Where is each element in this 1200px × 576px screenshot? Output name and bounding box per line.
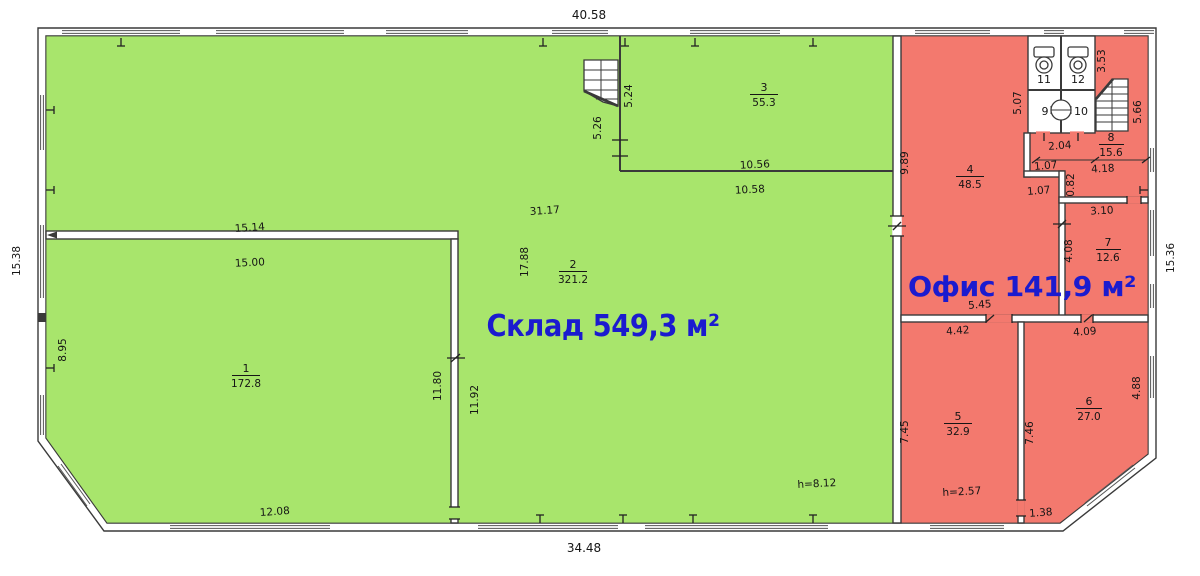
sink-icon [1051, 100, 1071, 120]
room6-number: 6 [1086, 395, 1093, 408]
dim-wall1-top: 15.14 [234, 221, 265, 235]
dim-room2-height: 17.88 [519, 247, 531, 277]
dim-step-b: 1.07 [1027, 184, 1051, 198]
room1-area: 172.8 [231, 378, 261, 390]
dim-wall1-bot: 15.00 [235, 256, 266, 270]
dim-room8-height: 5.66 [1132, 100, 1144, 124]
dim-room8-width: 3.53 [1096, 49, 1108, 72]
room4-area: 48.5 [958, 179, 981, 191]
dim-room5-width: 4.42 [946, 324, 970, 338]
toilet-icon-room12 [1068, 47, 1088, 73]
dim-room7-bottom: 4.09 [1073, 325, 1097, 339]
room5-number: 5 [955, 410, 962, 423]
dim-room4-height: 9.89 [899, 151, 911, 174]
dim-room6-side: 4.88 [1131, 376, 1143, 399]
dim-room3-width-out: 10.58 [735, 183, 766, 197]
room3-number: 3 [761, 81, 768, 94]
room9-number: 9 [1042, 105, 1049, 118]
dim-bottom: 34.48 [567, 541, 601, 555]
room12-number: 12 [1071, 73, 1085, 86]
dim-room3-left-in: 5.24 [623, 84, 635, 108]
dim-room7-height: 4.08 [1063, 239, 1075, 262]
floor-plan: 40.58 34.48 12.08 15.38 8.95 15.36 15.14… [0, 0, 1200, 576]
dim-room2-width: 31.17 [529, 204, 560, 218]
dim-room6-bottom: 1.38 [1029, 506, 1053, 520]
room7-number: 7 [1105, 236, 1112, 249]
dim-wc-width: 2.04 [1048, 139, 1072, 153]
room8-area: 15.6 [1099, 147, 1123, 159]
dim-warehouse-height: h=8.12 [797, 477, 836, 491]
toilet-icon-room11 [1034, 47, 1054, 73]
dim-top: 40.58 [572, 8, 606, 22]
room2-area: 321.2 [558, 274, 588, 286]
room8-number: 8 [1108, 131, 1115, 144]
dim-wallb-right: 11.92 [469, 385, 481, 415]
dim-right: 15.36 [1165, 243, 1177, 273]
warehouse-title: Склад 549,3 м² [487, 309, 720, 344]
dim-wallb-left: 11.80 [432, 371, 444, 401]
room3-area: 55.3 [752, 97, 775, 109]
dim-bottom-left: 12.08 [259, 505, 290, 519]
dim-left: 15.38 [11, 246, 23, 276]
dim-left-inner: 8.95 [57, 338, 69, 361]
room7-area: 12.6 [1096, 252, 1120, 264]
dim-room7-top: 3.10 [1090, 204, 1114, 217]
dim-room6-height: 7.46 [1024, 421, 1036, 445]
dim-room5-height: 7.45 [899, 420, 911, 443]
room10-number: 10 [1074, 105, 1088, 118]
dim-hall-width: 4.18 [1091, 162, 1115, 175]
dim-step-a: 1.07 [1034, 159, 1058, 173]
room1-number: 1 [243, 362, 250, 375]
dim-step-v: 0.82 [1065, 173, 1077, 196]
room4-number: 4 [967, 163, 974, 176]
room5-area: 32.9 [946, 426, 969, 438]
office-title: Офис 141,9 м² [908, 270, 1136, 303]
room11-number: 11 [1037, 73, 1051, 86]
floor-plan-svg: 40.58 34.48 12.08 15.38 8.95 15.36 15.14… [0, 0, 1200, 576]
dim-room5-ceiling: h=2.57 [942, 485, 981, 499]
room2-number: 2 [570, 258, 577, 271]
dim-room3-left-out: 5.26 [592, 116, 604, 140]
warehouse-zone [46, 36, 893, 523]
dim-room3-width-in: 10.56 [740, 158, 771, 172]
dim-wc-height: 5.07 [1012, 91, 1024, 114]
room6-area: 27.0 [1077, 411, 1100, 423]
